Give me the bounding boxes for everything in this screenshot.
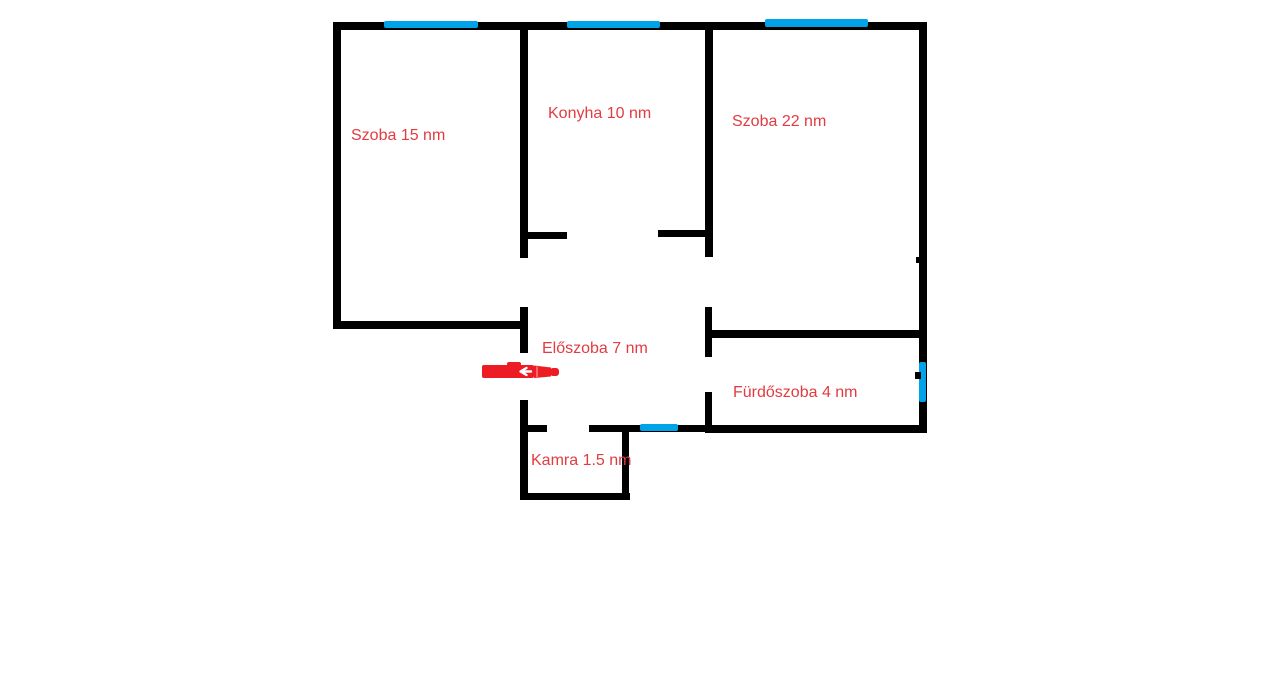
room-label-konyha: Konyha 10 nm <box>548 105 651 122</box>
floorplan-canvas: Szoba 15 nm Konyha 10 nm Szoba 22 nm Elő… <box>0 0 1280 677</box>
wall-szoba15-konyha <box>520 22 528 258</box>
wall-konyha-szoba22 <box>705 22 713 257</box>
wall-szoba15-bottom <box>333 321 527 329</box>
room-label-szoba15: Szoba 15 nm <box>351 127 445 144</box>
wall-furdoszoba-bottom <box>705 425 927 433</box>
wall-kamra-top-stub <box>520 425 547 432</box>
room-label-eloszoba: Előszoba 7 nm <box>542 340 648 357</box>
wall-furdoszoba-top <box>708 330 920 338</box>
wall-konyha-opening-right-stub <box>658 230 708 237</box>
window-konyha-top <box>567 21 660 28</box>
wall-kamra-bottom <box>520 493 630 500</box>
room-label-szoba22: Szoba 22 nm <box>732 113 826 130</box>
wall-eloszoba-left-lower <box>520 400 528 500</box>
wall-eloszoba-left-upper <box>520 307 528 353</box>
room-label-furdoszoba: Fürdőszoba 4 nm <box>733 384 858 401</box>
window-bottom-middle <box>640 424 678 431</box>
wall-exterior-left <box>333 22 341 329</box>
window-szoba22-top <box>765 19 868 27</box>
wall-mark-right-upper <box>916 257 921 263</box>
window-szoba15-top <box>384 21 478 28</box>
wall-mark-right-lower <box>915 372 921 379</box>
window-furdoszoba-right <box>919 362 926 402</box>
entrance-arrow-icon <box>481 361 561 381</box>
wall-konyha-opening-left-stub <box>523 232 567 239</box>
room-label-kamra: Kamra 1.5 nm <box>531 452 631 469</box>
